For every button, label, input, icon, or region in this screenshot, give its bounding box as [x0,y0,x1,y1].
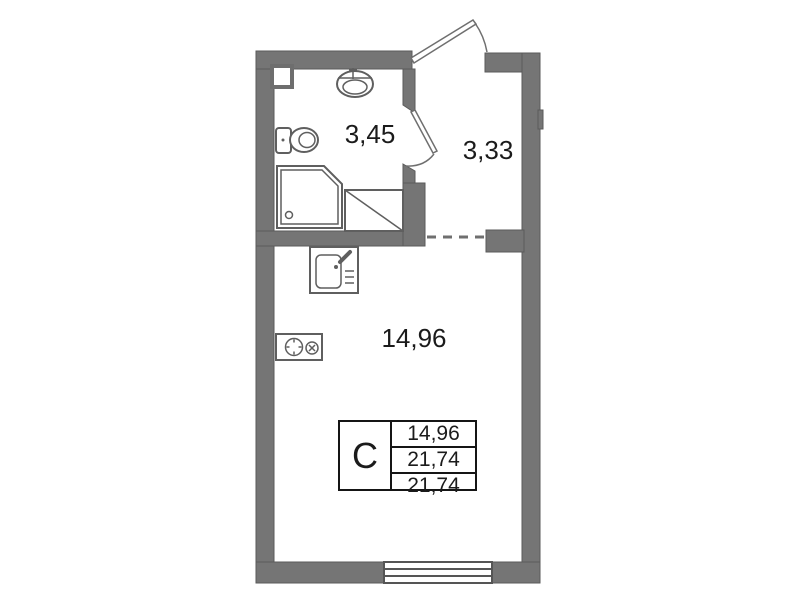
bathroom-door-leaf [411,110,437,153]
wash-basin [337,68,373,97]
appliance-space [345,190,403,231]
entrance-door [411,20,487,63]
unit-type-label: С [340,422,392,489]
entrance-door-swing-arc [475,23,487,52]
wall-right [522,53,540,583]
window-frame [384,562,492,583]
wall-right-bump [538,110,543,129]
basin-outline [337,71,373,97]
entrance-door-leaf [411,20,476,63]
wall-bathroom-right-upper [403,69,415,113]
toilet [276,128,318,153]
floor-plan-drawing: 3,45 3,33 14,96 [0,0,799,600]
window [384,562,492,583]
hallway-area-label: 3,33 [463,135,514,165]
bathroom-area-label: 3,45 [345,119,396,149]
bathroom-door [406,110,437,166]
bathroom-door-swing-arc [406,154,434,166]
shower-tray [277,166,342,228]
toilet-flush-button [282,139,285,142]
wall-bathroom-right-lower [403,183,425,246]
unit-living-area: 14,96 [392,422,475,448]
stove [276,334,322,360]
kitchen-sink [310,247,358,293]
sink-faucet-dot [334,265,338,269]
wall-bathroom-bottom [256,231,425,246]
shower-outline [277,166,342,228]
living-room-area-label: 14,96 [381,323,446,353]
toilet-bowl [290,128,318,152]
wall-bottom-left [256,562,384,583]
unit-total-area-with-balcony: 21,74 [392,474,475,498]
wall-bathroom-door-jamb [403,164,415,185]
wall-hallway-bottom [486,230,524,252]
wall-pilaster [272,66,292,87]
unit-total-area: 21,74 [392,448,475,474]
unit-info-table: С 14,96 21,74 21,74 [338,420,477,491]
unit-area-rows: 14,96 21,74 21,74 [392,422,475,489]
wall-left [256,51,274,583]
floor-plan-canvas: 3,45 3,33 14,96 С 14,96 21,74 21,74 [0,0,799,600]
wall-bottom-right [492,562,540,583]
